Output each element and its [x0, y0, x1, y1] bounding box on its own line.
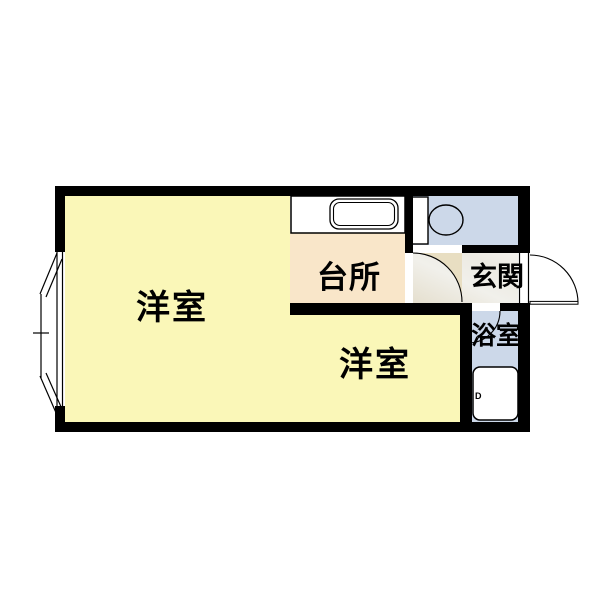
wall-top	[55, 186, 530, 196]
kitchen-sink-icon	[330, 199, 398, 229]
kitchen-label: 台所	[317, 260, 381, 295]
wall-right-upper	[518, 186, 530, 253]
wall-kitchen-bottom	[290, 303, 462, 315]
main-room-label: 洋室	[136, 288, 208, 327]
wall-toilet-bottom	[462, 245, 518, 253]
bathroom-door-opening	[472, 303, 500, 311]
bathroom-label: 浴室	[471, 321, 521, 350]
toilet-tank-icon	[412, 197, 428, 244]
wall-bottom	[55, 422, 530, 432]
second-room-label: 洋室	[339, 345, 411, 384]
floorplan-canvas: D 洋室 台所 玄関 浴室	[0, 0, 600, 600]
wall-left-upper	[55, 186, 65, 252]
wall-bathroom-top	[500, 303, 518, 311]
entrance-door-leaf	[530, 301, 578, 304]
wall-toilet-left	[405, 196, 413, 253]
floorplan-page: D 洋室 台所 玄関 浴室	[0, 0, 600, 600]
bathtub-faucet-mark: D	[475, 391, 482, 401]
entrance-label: 玄関	[470, 261, 524, 292]
